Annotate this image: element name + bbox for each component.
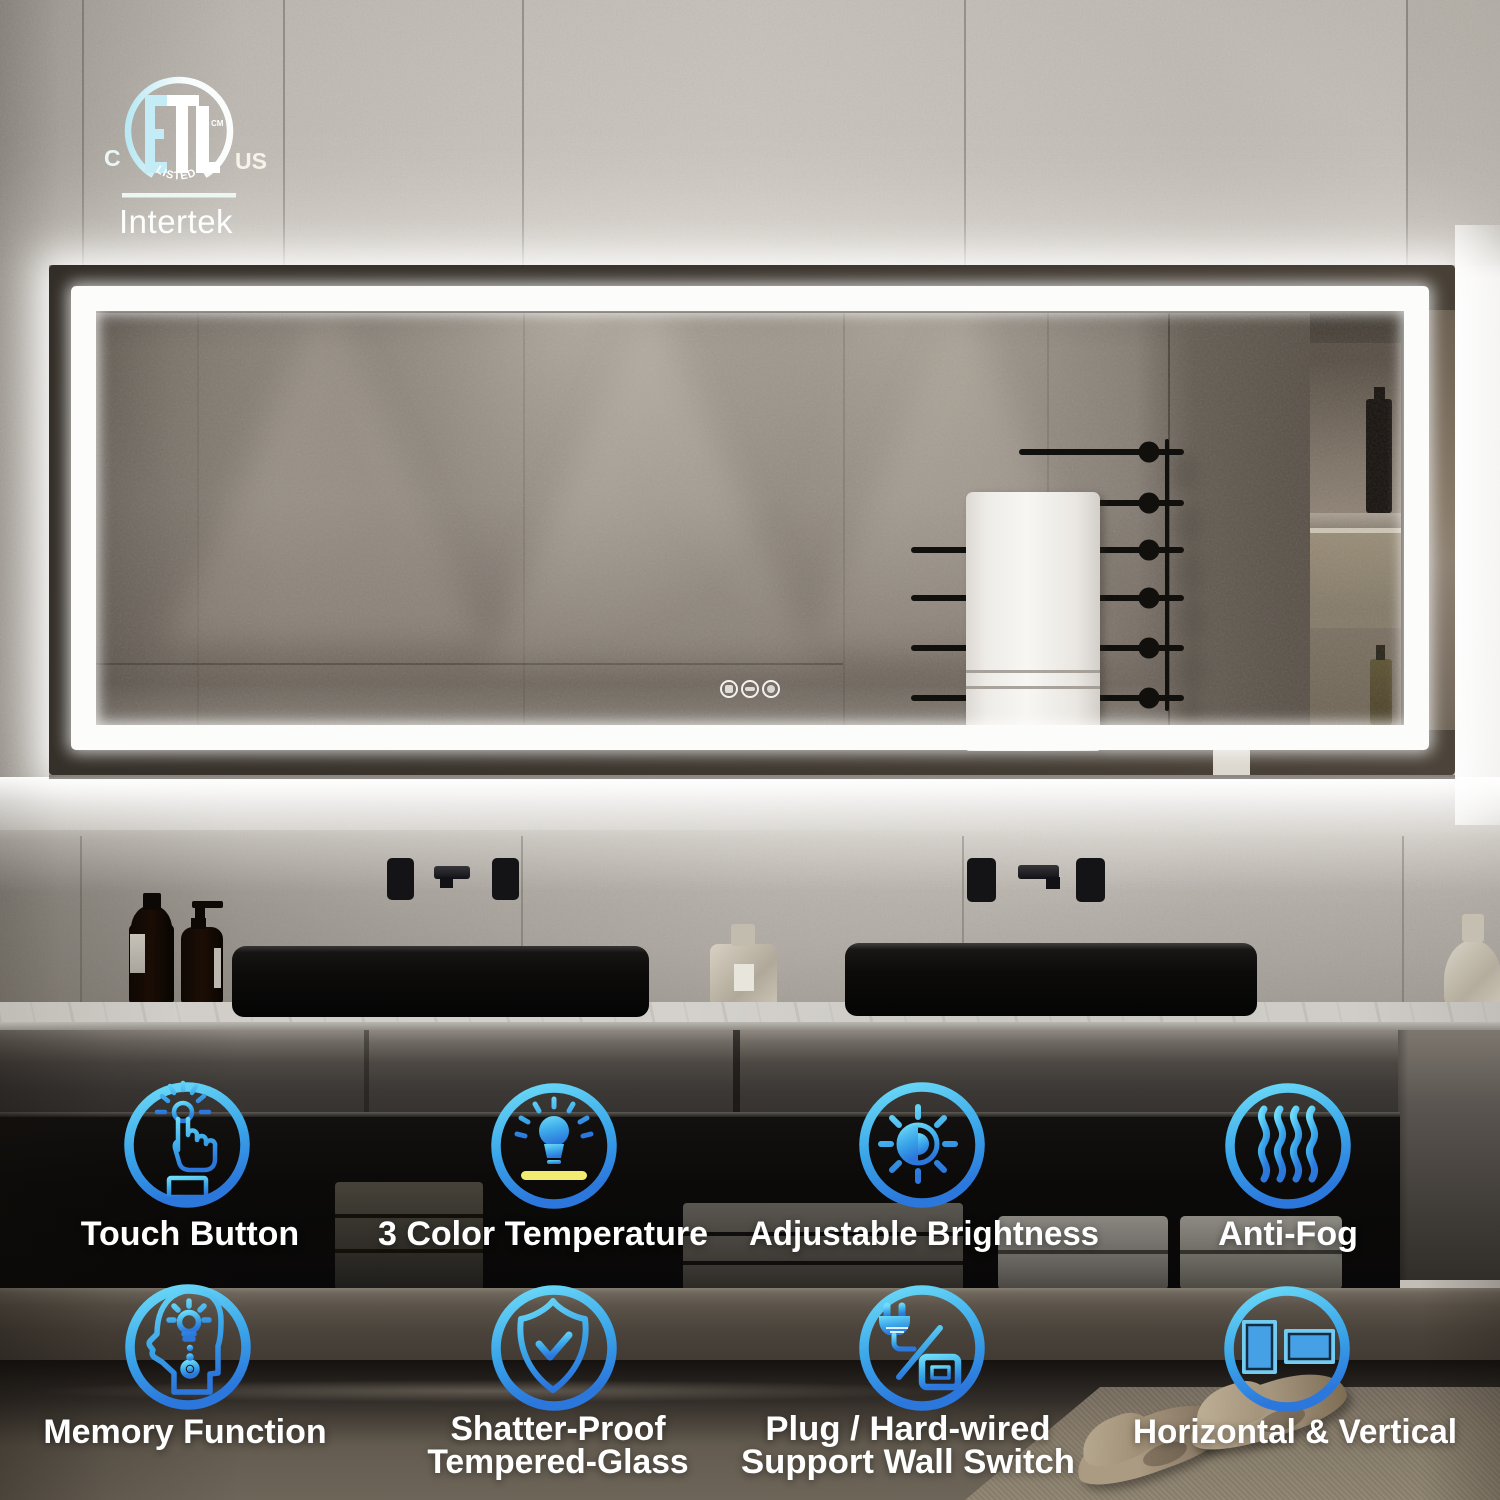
svg-text:LISTED: LISTED	[154, 164, 199, 183]
svg-text:CM: CM	[211, 119, 224, 128]
svg-text:C: C	[104, 145, 121, 171]
svg-text:US: US	[235, 148, 267, 174]
svg-text:Intertek: Intertek	[119, 203, 233, 240]
